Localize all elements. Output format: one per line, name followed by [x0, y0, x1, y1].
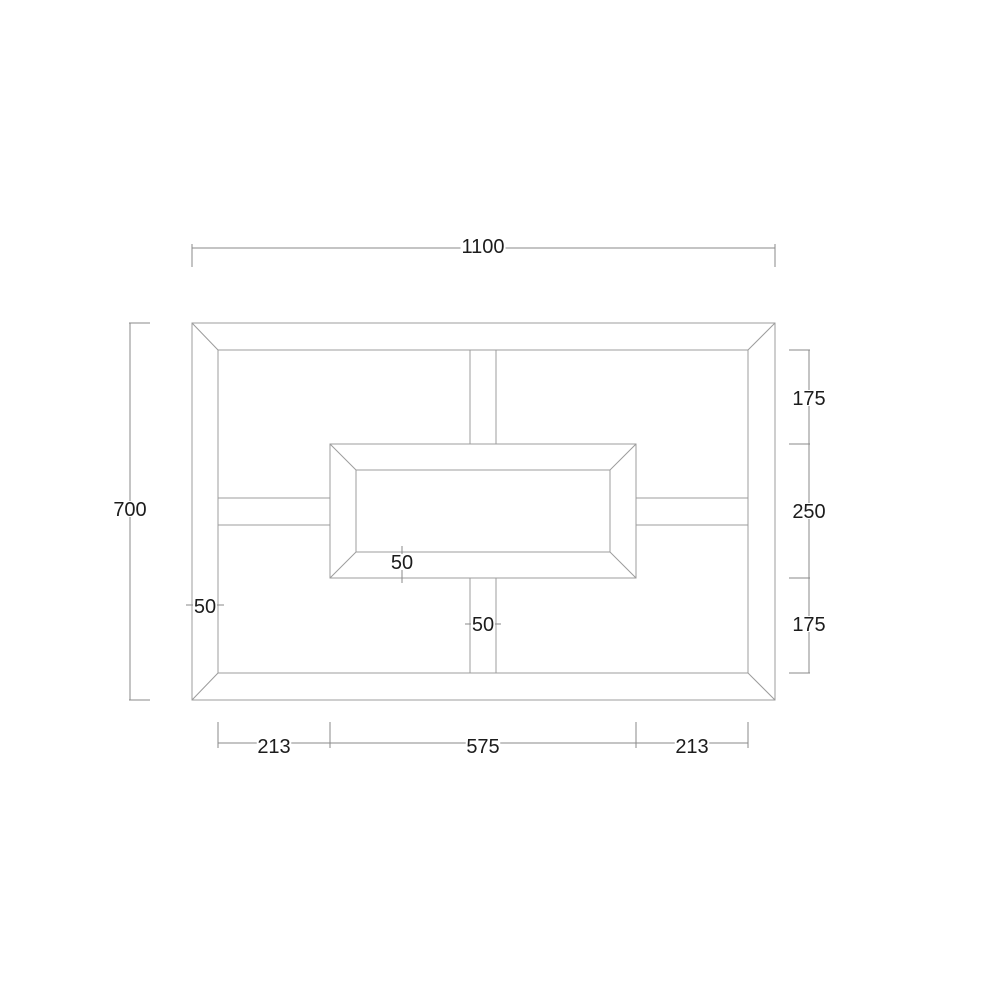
box-miter-top-right: [610, 444, 636, 470]
frame-miter-bottom-left: [192, 673, 218, 700]
dim-label-bottom-right: 213: [675, 736, 708, 758]
frame-miter-top-right: [748, 323, 775, 350]
dim-label-right-middle: 250: [792, 501, 825, 523]
frame-miter-top-left: [192, 323, 218, 350]
center-box-outline: [330, 444, 636, 578]
drawing-page: 1100700175250175213575213505050: [0, 0, 1000, 1000]
box-miter-bottom-right: [610, 552, 636, 578]
dim-label-divider-thickness: 50: [472, 614, 494, 636]
frame-miter-bottom-right: [748, 673, 775, 700]
box-miter-top-left: [330, 444, 356, 470]
box-miter-bottom-left: [330, 552, 356, 578]
center-box-inner-outline: [356, 470, 610, 552]
technical-drawing: 1100700175250175213575213505050: [0, 0, 1000, 1000]
dim-label-frame-thickness: 50: [194, 596, 216, 618]
dim-label-bottom-left: 213: [257, 736, 290, 758]
dim-label-right-top: 175: [792, 388, 825, 410]
dim-label-box-thickness: 50: [391, 552, 413, 574]
dim-label-overall-width: 1100: [461, 236, 504, 258]
dim-label-right-bottom: 175: [792, 614, 825, 636]
dim-label-bottom-center: 575: [466, 736, 499, 758]
dim-label-overall-height: 700: [113, 499, 146, 521]
outer-frame-outline: [192, 323, 775, 700]
